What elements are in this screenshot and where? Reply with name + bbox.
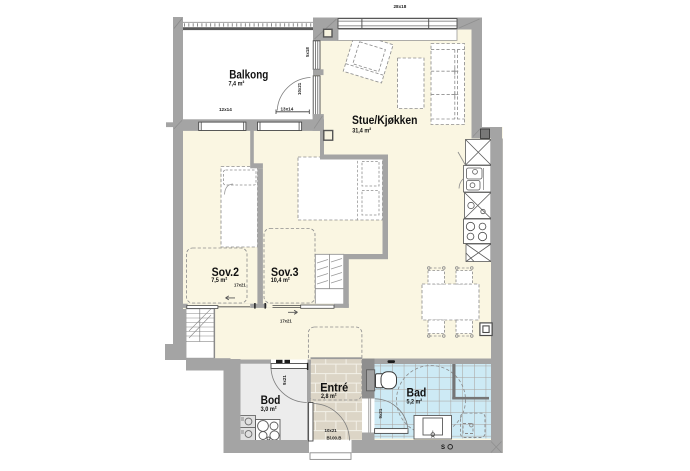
- svg-text:10x21: 10x21: [297, 82, 302, 95]
- svg-text:13x14: 13x14: [281, 106, 294, 111]
- svg-text:7,5 m²: 7,5 m²: [211, 277, 228, 284]
- svg-text:12x14: 12x14: [219, 107, 232, 112]
- svg-text:10,4 m²: 10,4 m²: [271, 277, 291, 284]
- svg-text:7,4 m²: 7,4 m²: [229, 80, 245, 87]
- svg-text:28x18: 28x18: [394, 4, 407, 9]
- svg-text:Balkong: Balkong: [229, 67, 268, 81]
- svg-text:5,2 m²: 5,2 m²: [407, 399, 423, 406]
- svg-text:5x18: 5x18: [305, 47, 310, 57]
- svg-text:Stue/Kjøkken: Stue/Kjøkken: [352, 115, 418, 127]
- svg-text:S: S: [441, 445, 445, 451]
- svg-text:Bl.00.B: Bl.00.B: [327, 436, 342, 441]
- svg-text:31,4 m²: 31,4 m²: [352, 127, 371, 134]
- svg-text:9x21: 9x21: [282, 375, 287, 385]
- svg-text:17x21: 17x21: [234, 283, 246, 288]
- svg-text:3,0 m²: 3,0 m²: [261, 406, 278, 413]
- svg-text:Bad: Bad: [407, 387, 427, 399]
- svg-text:Bod: Bod: [261, 393, 281, 407]
- svg-text:9x21: 9x21: [378, 408, 383, 418]
- svg-text:2,8 m²: 2,8 m²: [321, 393, 337, 400]
- svg-text:10x21: 10x21: [325, 428, 338, 433]
- svg-text:Entré: Entré: [320, 380, 348, 394]
- svg-text:17x21: 17x21: [280, 318, 292, 323]
